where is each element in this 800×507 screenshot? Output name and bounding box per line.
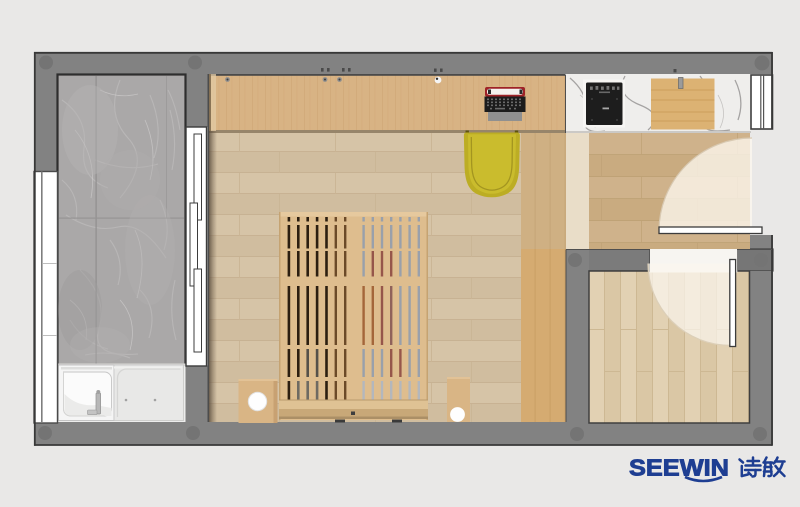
svg-text:SEEWIN: SEEWIN [629, 455, 729, 481]
